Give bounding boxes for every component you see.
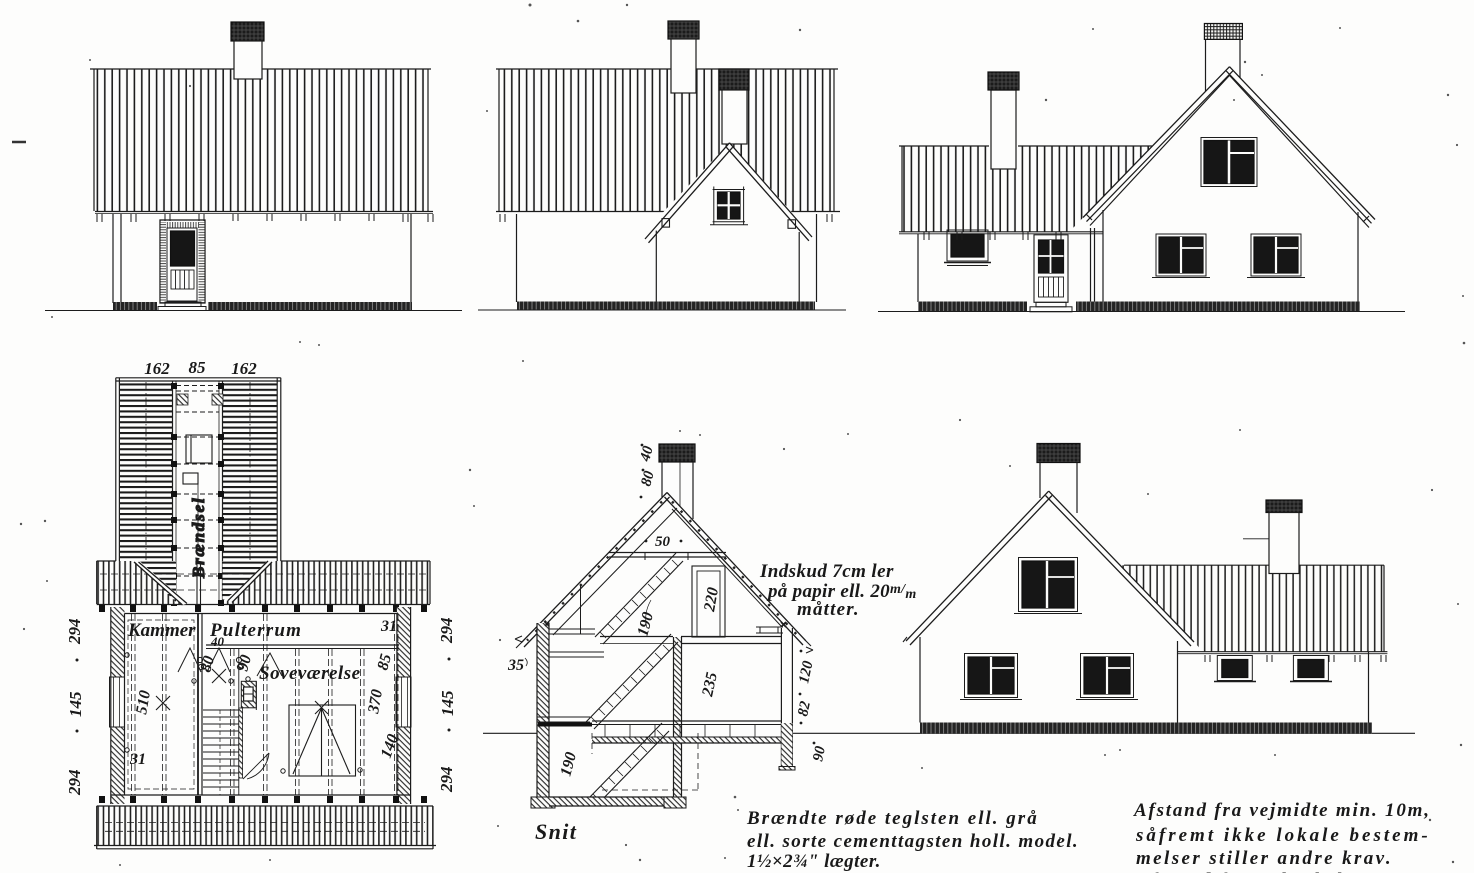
svg-text:Brændsel: Brændsel [189, 497, 208, 579]
svg-text:162: 162 [231, 359, 257, 378]
svg-text:Snit: Snit [535, 819, 577, 844]
svg-text:40: 40 [210, 634, 225, 649]
svg-text:85: 85 [189, 358, 207, 377]
svg-text:31: 31 [380, 618, 397, 635]
svg-text:35: 35 [507, 657, 524, 674]
svg-text:måtter.: måtter. [797, 599, 860, 620]
svg-text:31: 31 [129, 751, 146, 768]
svg-text:såfremt ikke lokale bestem-: såfremt ikke lokale bestem- [1135, 825, 1431, 846]
svg-text:50: 50 [655, 534, 671, 550]
svg-text:162: 162 [144, 359, 170, 378]
svg-text:294: 294 [65, 619, 84, 646]
svg-text:Soveværelse: Soveværelse [259, 663, 361, 684]
svg-text:294: 294 [437, 767, 456, 794]
svg-text:145: 145 [66, 691, 85, 717]
svg-text:Kammer: Kammer [127, 620, 196, 641]
svg-text:145: 145 [438, 690, 457, 716]
svg-text:melser stiller andre krav.: melser stiller andre krav. [1136, 848, 1393, 869]
svg-text:Afstand fra vejmidte min. 10m,: Afstand fra vejmidte min. 10m, [1133, 800, 1431, 821]
svg-text:1½×2¾" lægter.: 1½×2¾" lægter. [747, 851, 881, 872]
svg-text:294: 294 [65, 770, 84, 797]
svg-text:Indskud 7cm ler: Indskud 7cm ler [759, 561, 894, 582]
svg-text:Brændte røde teglsten ell. grå: Brændte røde teglsten ell. grå [746, 808, 1039, 829]
svg-text:ell. sorte cementtagsten holl.: ell. sorte cementtagsten holl. model. [747, 831, 1079, 852]
svg-text:294: 294 [437, 618, 456, 645]
